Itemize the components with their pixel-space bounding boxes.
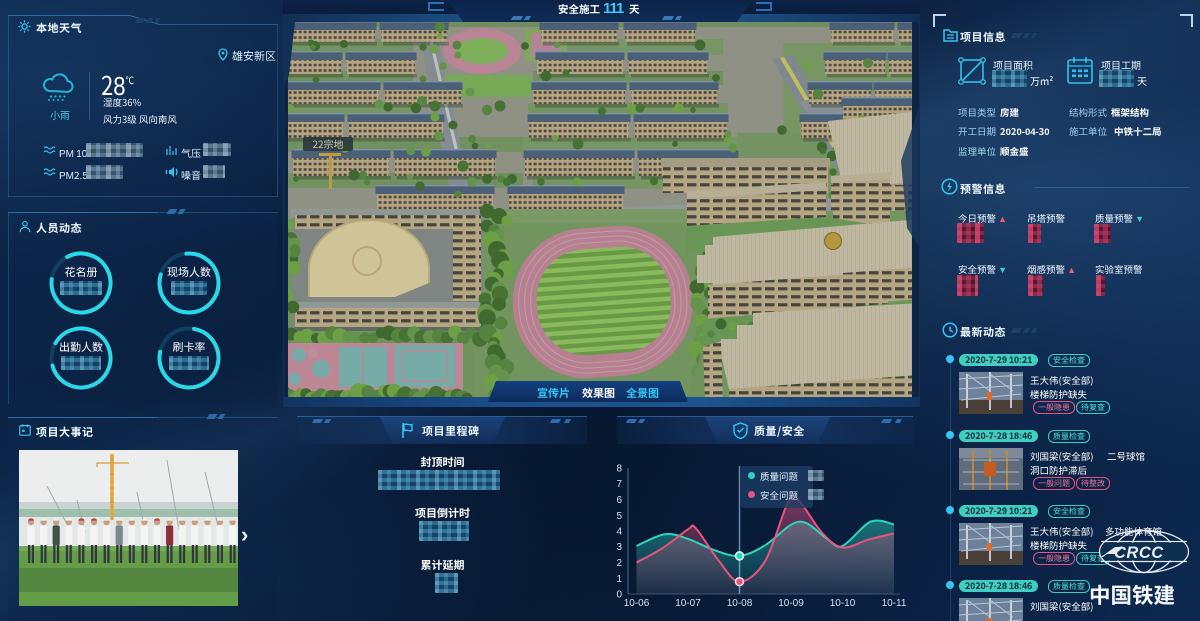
- svg-text:5: 5: [616, 511, 622, 522]
- svg-text:6: 6: [616, 495, 622, 506]
- svg-text:CRCC: CRCC: [1114, 544, 1164, 562]
- svg-text:7: 7: [616, 479, 622, 490]
- svg-text:0: 0: [616, 590, 622, 601]
- svg-text:4: 4: [616, 527, 622, 538]
- svg-text:10-11: 10-11: [882, 598, 907, 609]
- svg-text:10-09: 10-09: [778, 598, 804, 609]
- svg-text:10-08: 10-08: [727, 598, 753, 609]
- svg-text:2: 2: [616, 558, 622, 569]
- svg-text:3: 3: [616, 542, 622, 553]
- svg-text:1: 1: [616, 574, 622, 585]
- svg-text:10-10: 10-10: [830, 598, 856, 609]
- svg-text:10-06: 10-06: [624, 598, 650, 609]
- svg-text:8: 8: [616, 464, 622, 475]
- svg-text:10-07: 10-07: [675, 598, 701, 609]
